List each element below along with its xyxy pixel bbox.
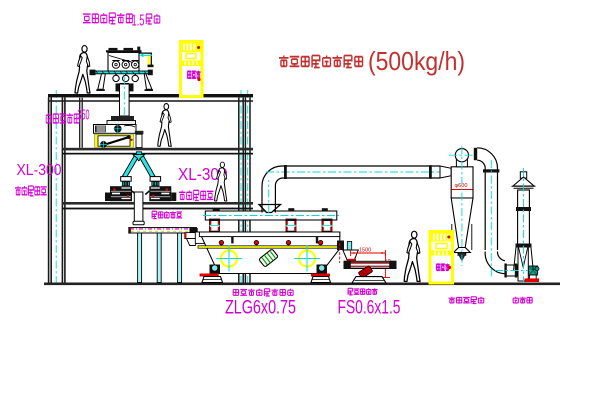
svg-text:ZLG6x0.75: ZLG6x0.75	[225, 298, 296, 319]
svg-text:FS0.6x1.5: FS0.6x1.5	[338, 298, 401, 319]
svg-text:1.5: 1.5	[132, 13, 145, 30]
svg-text:(500kg/h): (500kg/h)	[368, 46, 465, 76]
svg-text:φ600: φ600	[455, 183, 468, 189]
svg-text:XL-300: XL-300	[17, 162, 62, 179]
svg-text:350: 350	[78, 107, 90, 124]
svg-text:1500: 1500	[359, 248, 371, 254]
